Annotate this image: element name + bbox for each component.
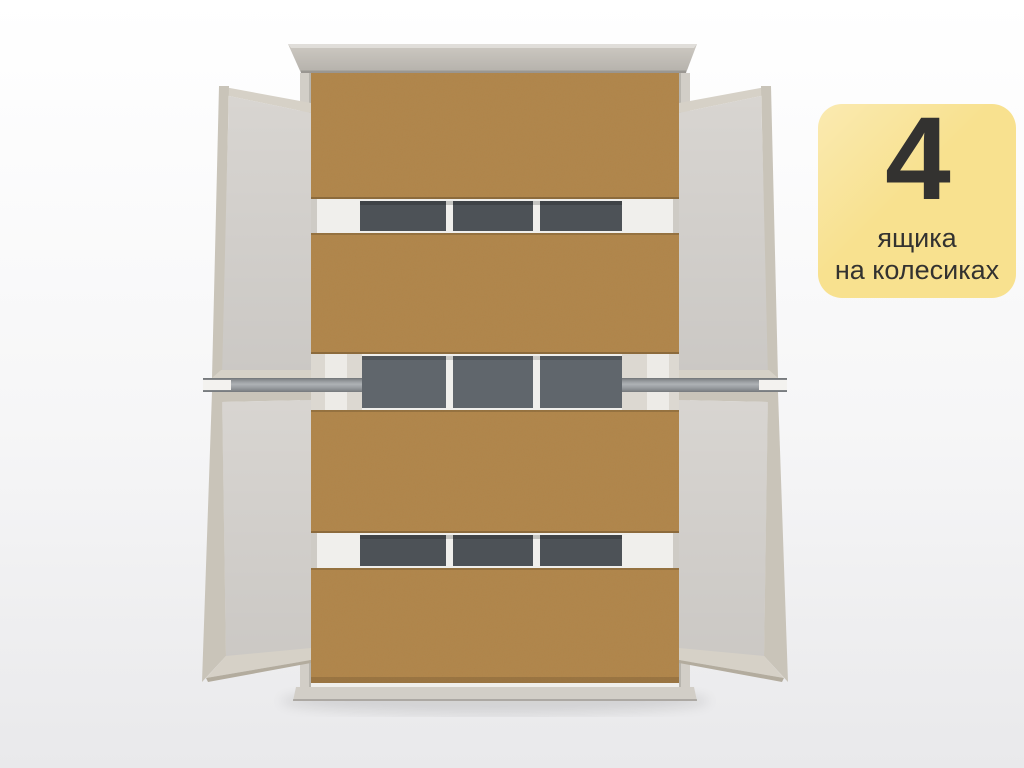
badge-label-line2: на колесиках <box>835 254 999 286</box>
shade <box>311 533 317 568</box>
shade <box>293 699 697 701</box>
shade <box>311 199 317 233</box>
shade <box>288 44 697 73</box>
gap-panel <box>540 201 622 231</box>
gap-panel <box>360 201 446 231</box>
feature-badge: 4 ящика на колесиках <box>818 104 1016 298</box>
badge-number: 4 <box>885 105 949 214</box>
fiberboard-panel-2 <box>311 233 679 354</box>
shade <box>311 677 679 683</box>
headboard-top-bevel <box>288 44 697 48</box>
panel-texture <box>311 73 679 199</box>
badge-label-line1: ящика <box>877 222 956 254</box>
product-image-canvas: 4 ящика на колесиках <box>0 0 1024 768</box>
gap-panel <box>453 201 533 231</box>
shade <box>311 568 679 570</box>
fiberboard-panel-1 <box>311 73 679 199</box>
drawer-right-upper <box>679 86 778 378</box>
shade <box>362 356 622 360</box>
gap-panel <box>453 356 533 408</box>
shade <box>222 400 311 659</box>
gap-panel <box>362 356 446 408</box>
right-castor-notch <box>759 380 787 390</box>
fiberboard-panel-4 <box>311 568 679 683</box>
drawer-front-wall <box>212 370 311 378</box>
shade <box>679 400 768 659</box>
gap-panel <box>453 535 533 566</box>
shade <box>673 199 679 233</box>
shade <box>221 96 311 370</box>
panel-texture <box>311 233 679 354</box>
gap-panel <box>540 535 622 566</box>
shade <box>311 410 679 412</box>
drawer-front-wall <box>679 370 778 378</box>
drawer-left-lower <box>202 392 311 682</box>
shade <box>360 535 622 539</box>
shade <box>311 233 679 235</box>
drawer-side-wall <box>764 392 788 682</box>
panel-texture <box>311 568 679 683</box>
bed-foot-rail <box>293 687 697 701</box>
shade <box>679 96 769 370</box>
shade <box>360 201 622 205</box>
shade <box>301 71 686 74</box>
left-castor-notch <box>203 380 231 390</box>
gap-panel <box>360 535 446 566</box>
panel-texture <box>311 410 679 533</box>
drawer-right-lower <box>679 392 788 682</box>
fiberboard-panel-3 <box>311 410 679 533</box>
drawer-left-upper <box>212 86 311 378</box>
shade <box>311 197 679 199</box>
headboard <box>288 44 697 73</box>
shade <box>673 533 679 568</box>
drawer-side-wall <box>202 392 226 682</box>
shade <box>311 352 679 354</box>
gap-panel <box>540 356 622 408</box>
shade <box>311 531 679 533</box>
